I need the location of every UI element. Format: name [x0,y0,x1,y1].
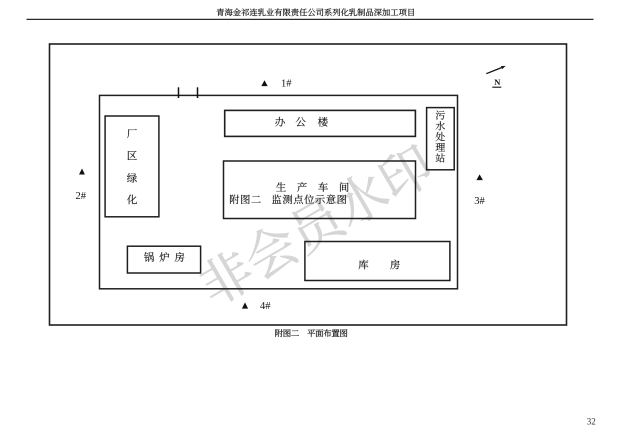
svg-text:4#: 4# [260,301,271,312]
svg-text:N: N [494,77,501,87]
svg-text:32: 32 [587,417,596,427]
svg-text:1#: 1# [281,79,292,90]
svg-text:3#: 3# [474,196,485,207]
svg-text:2#: 2# [76,191,87,202]
